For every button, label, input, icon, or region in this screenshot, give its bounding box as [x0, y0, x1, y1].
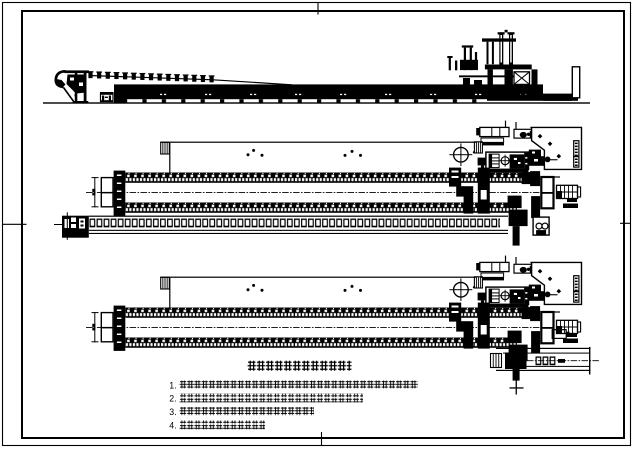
- svg-text:3.: 3.: [169, 407, 176, 417]
- svg-text:2.: 2.: [169, 394, 176, 404]
- svg-text:1.: 1.: [169, 380, 176, 390]
- svg-text:4.: 4.: [169, 421, 176, 431]
